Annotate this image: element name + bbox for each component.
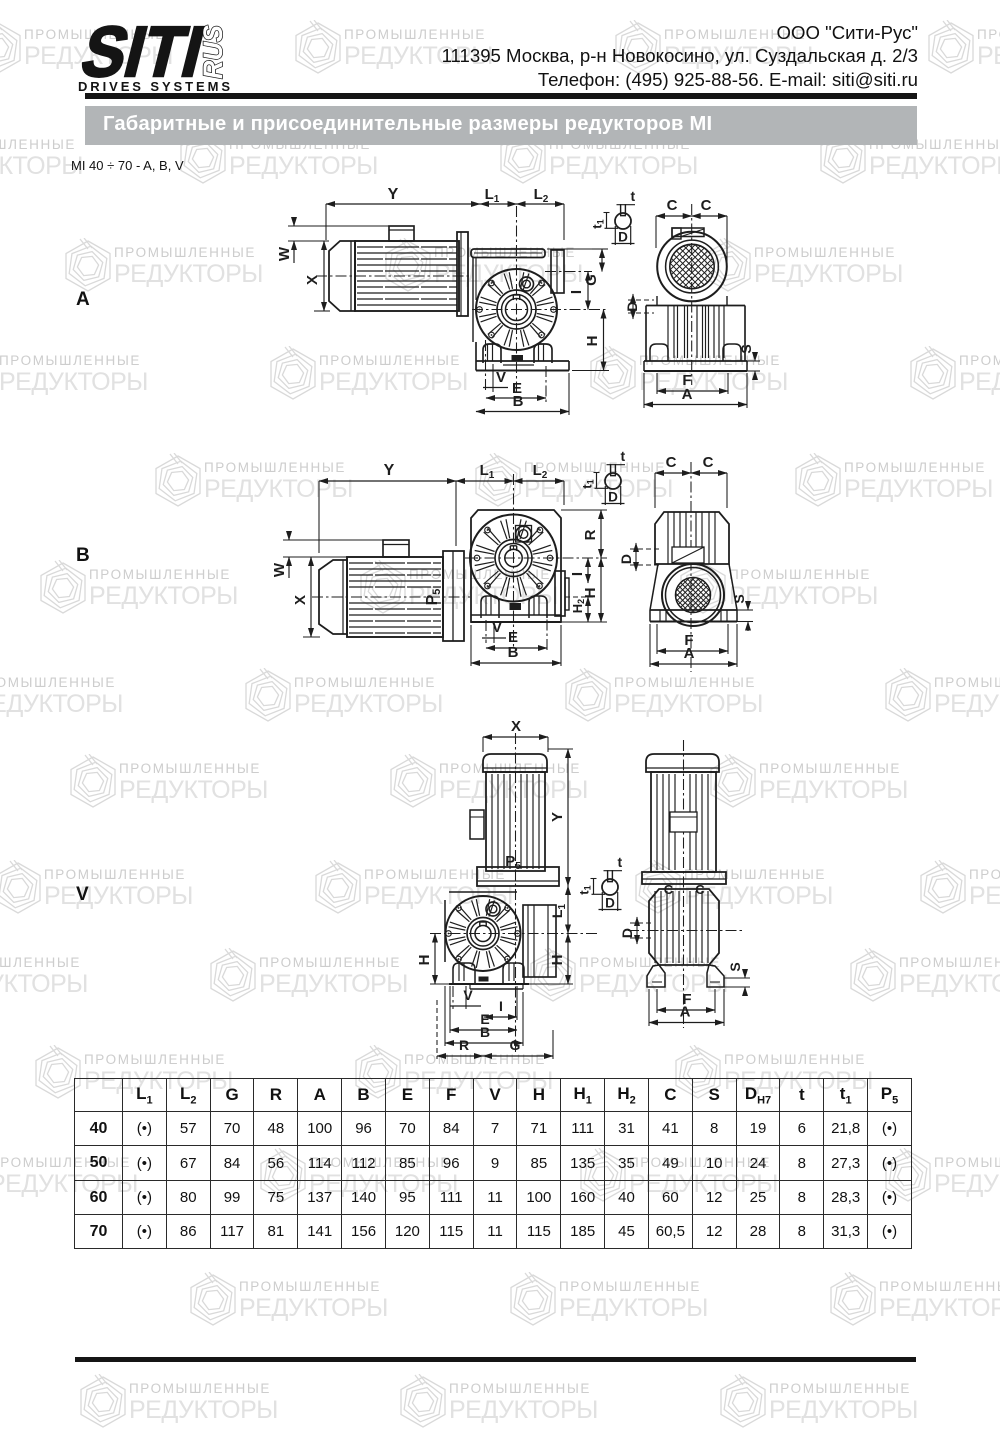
svg-text:D: D xyxy=(605,896,615,911)
svg-text:D: D xyxy=(618,554,634,564)
svg-text:L2: L2 xyxy=(533,462,548,481)
svg-text:D: D xyxy=(618,230,628,245)
svg-text:L1: L1 xyxy=(485,186,500,205)
svg-text:L2: L2 xyxy=(534,186,549,205)
svg-text:H: H xyxy=(416,955,433,966)
svg-text:t: t xyxy=(621,448,626,464)
svg-text:X: X xyxy=(304,275,321,285)
svg-text:Y: Y xyxy=(549,812,566,822)
svg-text:I: I xyxy=(499,998,503,1014)
svg-text:A: A xyxy=(680,1004,691,1021)
svg-text:D: D xyxy=(624,301,640,311)
svg-text:Y: Y xyxy=(384,462,395,479)
svg-text:R: R xyxy=(459,1037,469,1053)
svg-text:Y: Y xyxy=(388,186,399,203)
svg-text:V: V xyxy=(496,369,506,386)
svg-text:P5: P5 xyxy=(505,853,521,872)
svg-text:D: D xyxy=(619,928,635,938)
svg-text:R: R xyxy=(582,529,599,540)
svg-text:t1: t1 xyxy=(577,885,593,894)
svg-text:S: S xyxy=(731,594,747,603)
svg-text:t1: t1 xyxy=(580,479,596,488)
svg-text:I: I xyxy=(568,290,585,294)
svg-text:C: C xyxy=(703,454,714,471)
svg-text:D: D xyxy=(608,490,618,505)
svg-text:B: B xyxy=(513,393,524,410)
svg-text:X: X xyxy=(292,595,309,605)
svg-text:C: C xyxy=(701,197,712,214)
svg-text:H: H xyxy=(584,336,601,347)
svg-text:H2: H2 xyxy=(570,599,586,613)
svg-text:V: V xyxy=(463,987,473,1003)
svg-text:P5: P5 xyxy=(424,589,443,606)
svg-text:L1: L1 xyxy=(480,462,495,481)
svg-text:t: t xyxy=(631,188,636,204)
svg-text:G: G xyxy=(583,274,600,286)
svg-text:H: H xyxy=(549,955,566,966)
svg-text:C: C xyxy=(666,454,677,471)
svg-text:B: B xyxy=(508,644,519,661)
svg-text:G: G xyxy=(510,1037,521,1053)
svg-text:W: W xyxy=(271,562,288,577)
svg-text:t: t xyxy=(618,854,623,870)
svg-text:S: S xyxy=(738,344,754,353)
svg-text:I: I xyxy=(569,572,586,576)
svg-text:A: A xyxy=(682,386,693,403)
svg-text:W: W xyxy=(276,246,293,261)
svg-text:t1: t1 xyxy=(590,219,606,228)
svg-text:X: X xyxy=(511,718,521,735)
svg-text:B: B xyxy=(480,1024,490,1040)
svg-text:C: C xyxy=(667,197,678,214)
svg-text:V: V xyxy=(492,619,502,636)
svg-text:S: S xyxy=(727,962,743,971)
svg-text:A: A xyxy=(684,645,695,662)
